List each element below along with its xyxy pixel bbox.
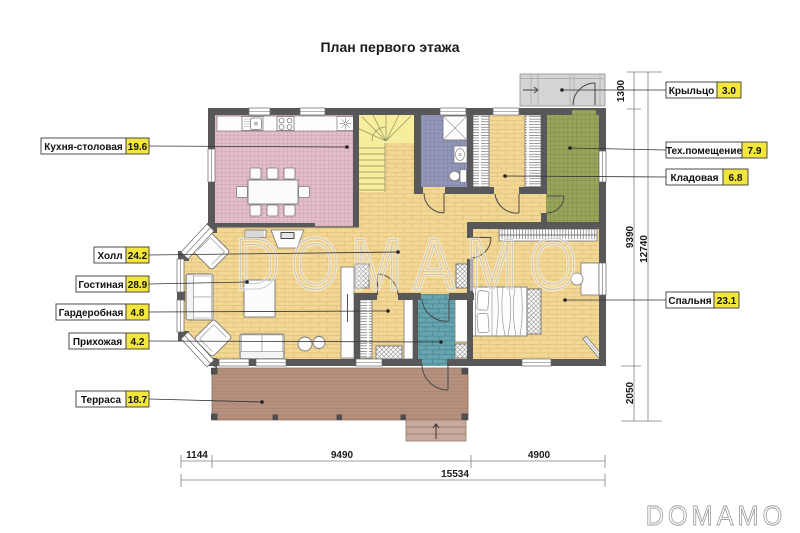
- svg-text:1300: 1300: [616, 79, 627, 102]
- svg-text:6.8: 6.8: [729, 173, 743, 184]
- svg-text:DOMAMO: DOMAMO: [235, 225, 588, 305]
- svg-text:Тех.помещение: Тех.помещение: [666, 146, 743, 157]
- svg-text:3.0: 3.0: [722, 86, 736, 97]
- svg-text:9490: 9490: [331, 450, 354, 461]
- svg-text:9390: 9390: [625, 225, 636, 248]
- svg-text:Кухня-столовая: Кухня-столовая: [44, 142, 123, 153]
- svg-text:1144: 1144: [186, 450, 208, 461]
- svg-text:4.2: 4.2: [131, 337, 145, 348]
- svg-text:2050: 2050: [625, 381, 636, 404]
- svg-text:28.9: 28.9: [128, 280, 148, 291]
- svg-text:Прихожая: Прихожая: [73, 337, 123, 348]
- svg-text:15534: 15534: [441, 469, 469, 480]
- svg-text:План первого этажа: План первого этажа: [320, 39, 459, 55]
- svg-text:Спальня: Спальня: [668, 296, 711, 307]
- svg-text:18.7: 18.7: [128, 395, 148, 406]
- svg-text:24.2: 24.2: [128, 251, 148, 262]
- svg-text:23.1: 23.1: [717, 296, 737, 307]
- svg-text:DOMAMO: DOMAMO: [646, 500, 786, 532]
- svg-text:Гостиная: Гостиная: [78, 280, 123, 291]
- svg-text:4.8: 4.8: [131, 308, 145, 319]
- svg-text:Крыльцо: Крыльцо: [669, 86, 715, 97]
- svg-text:7.9: 7.9: [748, 146, 762, 157]
- svg-text:Холл: Холл: [97, 251, 122, 262]
- svg-text:Гардеробная: Гардеробная: [59, 307, 124, 319]
- svg-text:4900: 4900: [528, 450, 551, 461]
- svg-text:Терраса: Терраса: [81, 395, 122, 406]
- svg-text:19.6: 19.6: [128, 142, 148, 153]
- svg-text:Кладовая: Кладовая: [671, 173, 719, 184]
- svg-text:12740: 12740: [639, 235, 650, 263]
